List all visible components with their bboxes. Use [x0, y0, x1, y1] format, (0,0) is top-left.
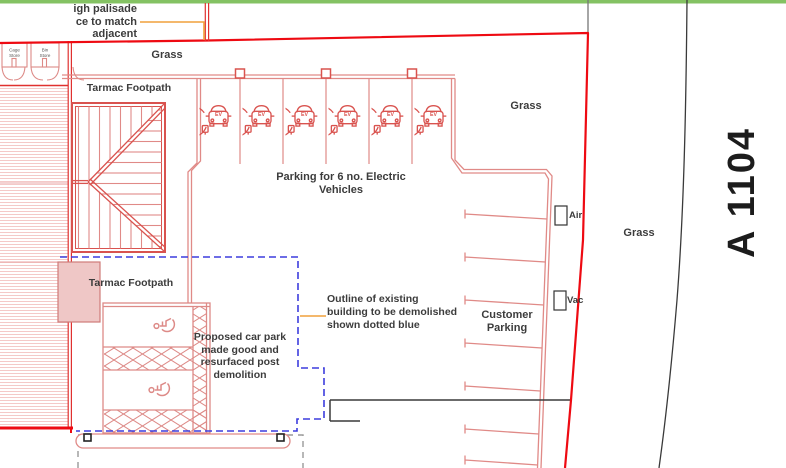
- barrier-post: [277, 434, 284, 441]
- ev-charging-points: [236, 69, 417, 78]
- air-station-box: [555, 206, 567, 225]
- canopy-block: [58, 262, 100, 322]
- footpath-edges: [62, 75, 197, 79]
- proposed-carpark-note: Proposed car parkmade good andresurfaced…: [186, 331, 294, 381]
- cage-store-label2: Store: [9, 53, 20, 58]
- bin-store-label2: Store: [40, 53, 51, 58]
- vac-label: Vac: [567, 294, 583, 307]
- existing-building-left: [0, 41, 71, 428]
- ev-parking-note: Parking for 6 no. ElectricVehicles: [262, 171, 420, 197]
- grass-label-mid: Grass: [503, 100, 549, 113]
- fence-annotation: igh palisadece to matchadjacent: [0, 3, 137, 41]
- ev-car-icon: [177, 106, 232, 137]
- demolition-annotation: Outline of existingbuilding to be demoli…: [327, 293, 457, 332]
- hipped-roof-building: [72, 103, 167, 252]
- barrier-post: [84, 434, 91, 441]
- bin-store-label: Bin: [42, 48, 49, 53]
- road-name: A 1104: [660, 110, 786, 275]
- grass-label-top: Grass: [144, 49, 190, 62]
- wheelchair-icon: [149, 383, 169, 396]
- cage-store-label: Cage: [9, 48, 20, 53]
- vac-station-box: [554, 291, 566, 310]
- wheelchair-icon: [154, 319, 174, 332]
- tarmac-footpath-label-top: Tarmac Footpath: [86, 82, 172, 95]
- barrier: [76, 434, 290, 448]
- customer-parking-bays: [465, 210, 547, 466]
- air-label: Air: [569, 209, 582, 222]
- leader-lines: [140, 22, 326, 316]
- ev-parking-bays: [188, 75, 552, 468]
- tarmac-footpath-label-lower: Tarmac Footpath: [88, 277, 174, 290]
- grass-label-verge: Grass: [616, 227, 662, 240]
- site-plan: EV: [0, 0, 786, 468]
- kerb-lines: [330, 400, 570, 421]
- customer-parking-label: CustomerParking: [468, 309, 546, 335]
